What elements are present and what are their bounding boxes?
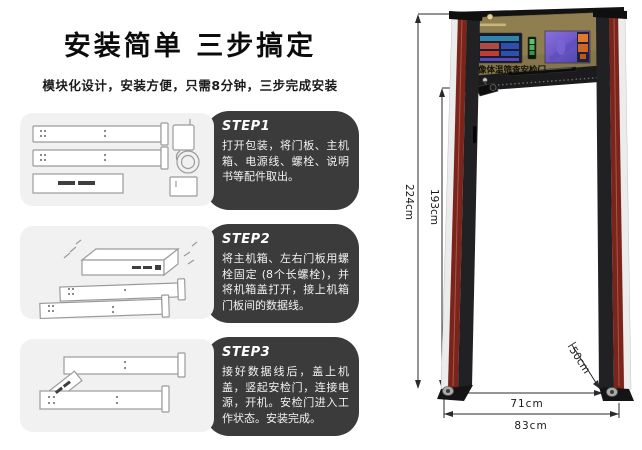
step3-label: STEP3 (222, 345, 349, 360)
step2-description: 将主机箱、左右门板用螺栓固定 (8个长螺栓)，并将机箱盖打开，接上机箱门板间的数… (222, 251, 349, 313)
dimension-labels: 224cm 193cm 50cm 71cm 83cm (403, 184, 593, 432)
dim-total-height: 224cm (403, 184, 415, 220)
step-card-1: STEP1 打开包装，将门板、主机箱、电源线、螺栓、说明书等配件取出。 (18, 111, 362, 210)
step1-diagram (20, 113, 214, 206)
step3-diagram-panel (20, 339, 214, 432)
security-gate-figure: 热成像体温筛查安检门 (400, 0, 642, 440)
security-gate-image: 热成像体温筛查安检门 (400, 0, 642, 440)
page-title: 安装简单 三步搞定 (18, 24, 362, 63)
page-subtitle: 模块化设计，安装方便，只需8分钟，三步完成安装 (18, 75, 362, 94)
dim-outer-width: 83cm (514, 420, 547, 432)
step3-description: 接好数据线后，盖上机盖，竖起安检门，连接电源，开机。安检门进入工作状态。安装完成… (222, 364, 349, 426)
step1-label: STEP1 (222, 119, 349, 134)
install-guide-section: 安装简单 三步搞定 模块化设计，安装方便，只需8分钟，三步完成安装 (18, 14, 362, 450)
gate-right-pillar (593, 9, 634, 401)
step1-description: 打开包装，将门板、主机箱、电源线、螺栓、说明书等配件取出。 (222, 138, 349, 185)
step3-diagram (20, 339, 214, 432)
step2-diagram (20, 226, 214, 319)
page: { "header": { "title": "安装简单 三步搞定", "sub… (0, 0, 642, 440)
dim-inner-height: 193cm (428, 189, 440, 225)
step1-text: STEP1 打开包装，将门板、主机箱、电源线、螺栓、说明书等配件取出。 (222, 119, 349, 185)
dim-base-depth: 50cm (566, 345, 592, 376)
step2-text: STEP2 将主机箱、左右门板用螺栓固定 (8个长螺栓)，并将机箱盖打开，接上机… (222, 232, 349, 313)
temperature-display (477, 33, 522, 63)
step-card-2: STEP2 将主机箱、左右门板用螺栓固定 (8个长螺栓)，并将机箱盖打开，接上机… (18, 224, 362, 323)
step2-diagram-panel (20, 226, 214, 319)
led-indicator-bar (528, 37, 536, 59)
brand-logo (487, 14, 493, 20)
step1-diagram-panel (20, 113, 214, 206)
step3-text: STEP3 接好数据线后，盖上机盖，竖起安检门，连接电源，开机。安检门进入工作状… (222, 345, 349, 426)
step-card-3: STEP3 接好数据线后，盖上机盖，竖起安检门，连接电源，开机。安检门进入工作状… (18, 337, 362, 436)
gate-left-pillar (437, 11, 483, 401)
step2-label: STEP2 (222, 232, 349, 247)
dim-inner-width: 71cm (510, 398, 543, 410)
thermal-display (545, 31, 590, 63)
